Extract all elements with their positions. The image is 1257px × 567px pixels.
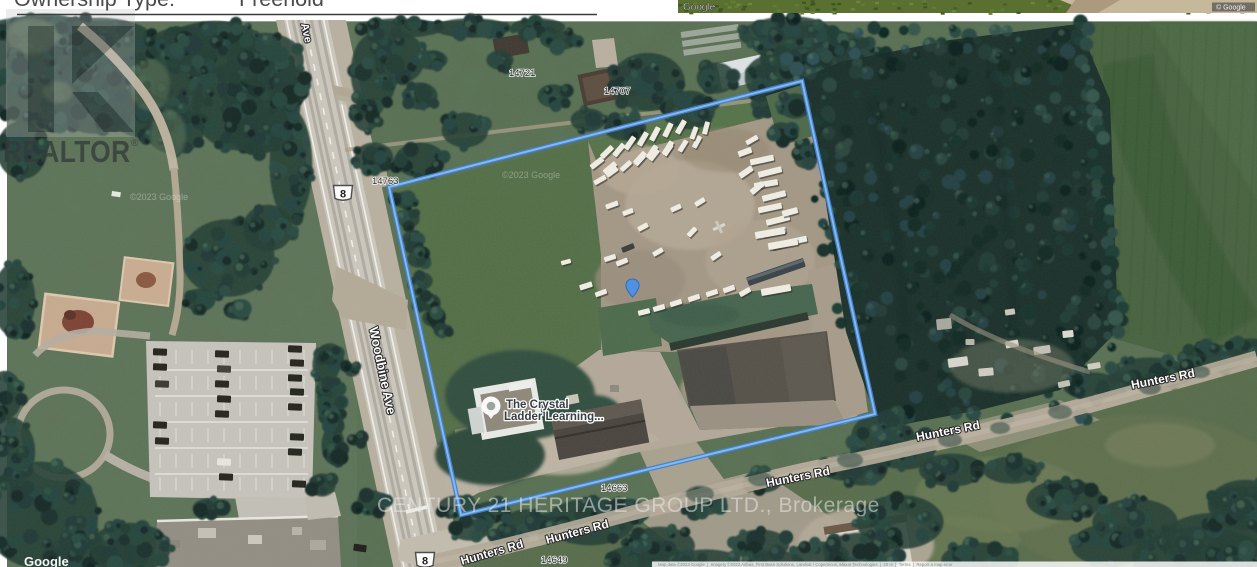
svg-text:© Google: © Google <box>1216 4 1246 12</box>
svg-text:Google: Google <box>683 2 716 13</box>
svg-text:Google: Google <box>24 554 69 567</box>
svg-text:Freehold: Freehold <box>239 0 324 11</box>
svg-text:Ownership Type:: Ownership Type: <box>14 0 175 11</box>
svg-text:Map data ©2023 Google | Imag: Map data ©2023 Google | Imagery ©2023 Ai… <box>658 562 953 567</box>
